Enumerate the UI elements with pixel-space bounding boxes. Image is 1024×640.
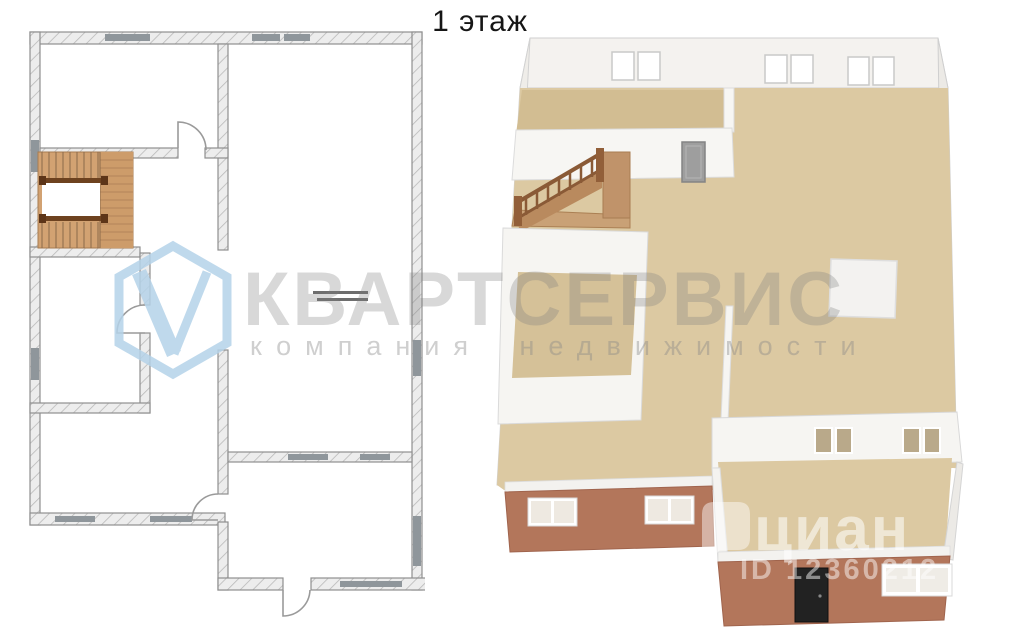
window-pane <box>671 499 691 521</box>
window-pane <box>554 501 574 523</box>
stairs-newel <box>514 196 522 226</box>
entry-door-3d <box>795 568 828 622</box>
stairs-post <box>101 176 108 185</box>
window-icon <box>815 428 832 453</box>
window-icon <box>848 57 869 85</box>
window-icon <box>791 55 813 83</box>
floor-plan-3d <box>490 30 990 635</box>
window-icon <box>612 52 634 80</box>
window-icon <box>284 34 310 41</box>
wall-bottomcenter-bottom-a <box>218 578 283 590</box>
wall-midleft-right-b <box>140 333 150 413</box>
window-icon <box>55 516 95 522</box>
window-icon <box>150 516 192 522</box>
stairs-rail-lower <box>42 216 104 221</box>
stairs-post <box>39 214 46 223</box>
window-icon <box>765 55 787 83</box>
floor-platform <box>829 259 897 318</box>
back-room-side-wall <box>724 88 734 132</box>
extension-front-window <box>882 564 952 596</box>
wall-divider <box>218 44 228 250</box>
wall-top <box>30 32 422 44</box>
walls-2d <box>30 32 425 590</box>
wall-right <box>412 32 422 590</box>
stairs-post <box>101 214 108 223</box>
door-arc-topleft <box>178 122 206 150</box>
wall-bottomcenter-left-a <box>218 350 228 494</box>
window-icon <box>360 454 390 460</box>
wall-midleft-bottom <box>30 403 150 413</box>
window-pane <box>920 568 948 592</box>
door-arc-entry <box>283 590 310 616</box>
window-icon <box>873 57 894 85</box>
window-icon <box>31 348 39 380</box>
window-icon <box>413 340 421 376</box>
extension-floor <box>718 458 952 560</box>
window-icon <box>836 428 852 453</box>
stairs-newel <box>596 148 604 182</box>
counter-symbol <box>313 291 368 301</box>
floorplan-page: { "page": { "title": "1 этаж", "backgrou… <box>0 0 1024 640</box>
back-room-floor <box>516 90 728 134</box>
interior-door-3d <box>682 142 705 182</box>
floor-plan-2d <box>25 28 425 638</box>
window-pane <box>648 499 668 521</box>
window-icon <box>924 428 940 453</box>
stairs-rail-upper <box>42 178 104 183</box>
window-pane <box>886 568 916 592</box>
wall-left <box>30 32 40 525</box>
window-icon <box>638 52 660 80</box>
stairs-side-panel <box>603 152 630 218</box>
stairs-void <box>42 183 100 219</box>
window-icon <box>288 454 328 460</box>
window-icon <box>105 34 150 41</box>
wall-midleft-right-a <box>140 253 150 305</box>
door-handle <box>818 594 821 597</box>
window-icon <box>903 428 920 453</box>
window-icon <box>252 34 280 41</box>
door-arc-midleft <box>117 305 145 333</box>
window-icon <box>340 581 402 587</box>
small-room-floor <box>512 272 637 378</box>
stairs-post <box>39 176 46 185</box>
wall-topleft-room-bottom2 <box>205 148 228 158</box>
staircase-2d <box>38 152 133 248</box>
window-pane <box>531 501 551 523</box>
window-icon <box>413 516 421 566</box>
